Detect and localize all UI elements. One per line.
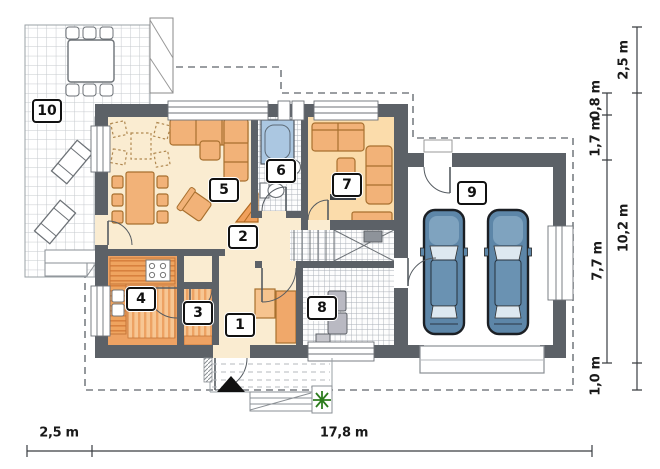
room-label-3: 3 bbox=[183, 301, 213, 325]
pantry-shelf bbox=[184, 336, 212, 345]
room-label-9: 9 bbox=[457, 181, 487, 205]
room-label-7: 7 bbox=[332, 173, 362, 197]
dim-inner-offset: 1,7 m bbox=[589, 117, 604, 157]
dining-set bbox=[112, 172, 168, 224]
dim-right-depth: 10,2 m bbox=[617, 204, 632, 252]
garage-door bbox=[420, 346, 544, 373]
dim-inner-step: 0,8 m bbox=[589, 80, 604, 120]
room-label-1: 1 bbox=[225, 313, 255, 337]
floor-plan-drawing bbox=[0, 0, 660, 469]
door-mat bbox=[204, 358, 212, 382]
toilet bbox=[260, 183, 284, 198]
room-label-2: 2 bbox=[228, 225, 258, 249]
dim-inner-garage: 7,7 m bbox=[591, 241, 606, 281]
dim-bottom-house: 17,8 m bbox=[320, 426, 368, 441]
entrance-arrow bbox=[217, 376, 245, 392]
car bbox=[485, 210, 532, 334]
dim-bottom-terrace: 2,5 m bbox=[39, 426, 79, 441]
floor-plan-page: 1 2 3 4 5 6 7 8 9 10 2,5 m 17,8 m 2,5 m … bbox=[0, 0, 660, 469]
room-label-5: 5 bbox=[209, 178, 239, 202]
bathtub bbox=[261, 120, 294, 164]
plant-icon bbox=[313, 391, 331, 409]
roof-edge bbox=[150, 18, 173, 93]
planter bbox=[312, 386, 332, 413]
room-label-8: 8 bbox=[307, 296, 337, 320]
room-label-4: 4 bbox=[126, 287, 156, 311]
coffee-table bbox=[200, 141, 220, 160]
car bbox=[421, 210, 468, 334]
entry-steps bbox=[250, 392, 312, 411]
dim-right-eave: 1,0 m bbox=[589, 356, 604, 396]
room-label-10: 10 bbox=[32, 99, 62, 123]
dim-right-top: 2,5 m bbox=[617, 40, 632, 80]
room-label-6: 6 bbox=[266, 159, 296, 183]
stove bbox=[146, 260, 170, 281]
terrace-table bbox=[66, 27, 114, 96]
entrance-porch bbox=[204, 358, 332, 413]
